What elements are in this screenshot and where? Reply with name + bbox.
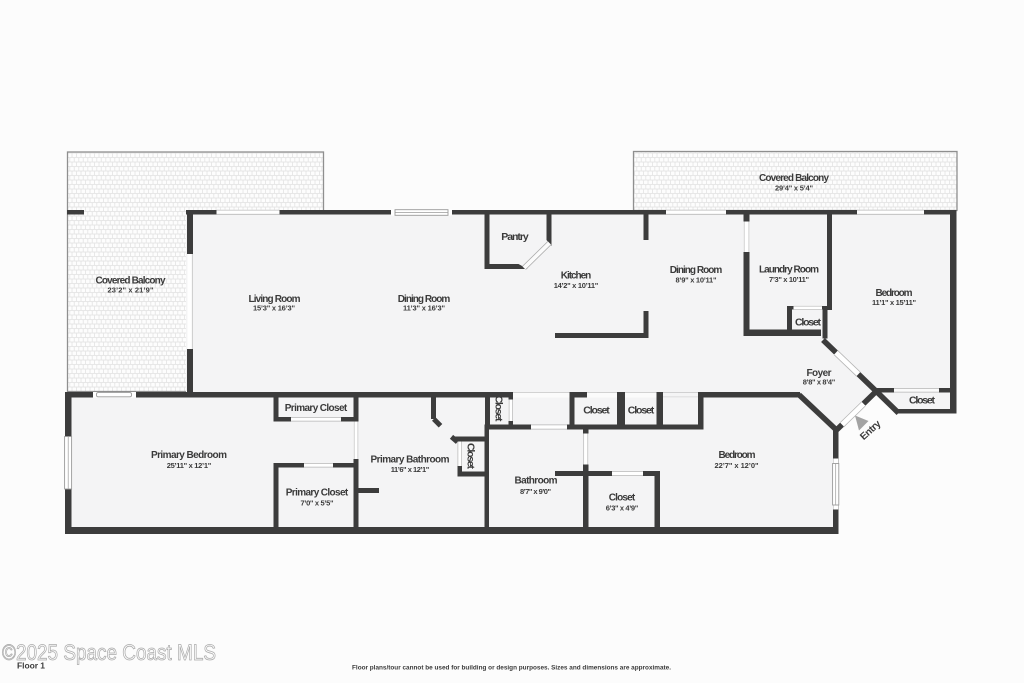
- svg-text:8’8" x 8’4": 8’8" x 8’4": [803, 378, 836, 387]
- svg-text:Laundry Room: Laundry Room: [759, 265, 819, 276]
- svg-text:Closet: Closet: [609, 493, 636, 504]
- svg-text:8’9" x 10’11": 8’9" x 10’11": [676, 276, 717, 285]
- svg-text:Primary Bathroom: Primary Bathroom: [371, 455, 450, 466]
- svg-text:Bedroom: Bedroom: [719, 450, 756, 461]
- svg-text:Closet: Closet: [493, 396, 505, 423]
- svg-text:29’4" x 5’4": 29’4" x 5’4": [775, 184, 813, 193]
- svg-text:Closet: Closet: [909, 395, 936, 407]
- svg-text:22’7" x 12’0": 22’7" x 12’0": [715, 461, 759, 470]
- svg-text:Dining Room: Dining Room: [670, 265, 723, 276]
- svg-text:Bathroom: Bathroom: [515, 476, 558, 487]
- svg-text:Closet: Closet: [583, 405, 610, 417]
- svg-text:Pantry: Pantry: [501, 231, 529, 243]
- svg-text:Primary Closet: Primary Closet: [285, 403, 348, 414]
- svg-text:Floor 1: Floor 1: [17, 661, 45, 671]
- svg-text:Primary Closet: Primary Closet: [286, 488, 349, 499]
- svg-text:Primary Bedroom: Primary Bedroom: [151, 450, 227, 461]
- svg-text:Covered Balcony: Covered Balcony: [759, 173, 829, 184]
- svg-text:14’2" x 10’11": 14’2" x 10’11": [554, 281, 599, 290]
- svg-text:8’7" x 9’0": 8’7" x 9’0": [520, 487, 551, 496]
- svg-text:Floor plans/tour cannot be use: Floor plans/tour cannot be used for buil…: [352, 665, 671, 672]
- svg-text:23’2" x 21’9": 23’2" x 21’9": [108, 286, 154, 295]
- svg-text:Kitchen: Kitchen: [561, 271, 592, 282]
- svg-text:7’3" x 10’11": 7’3" x 10’11": [769, 275, 809, 284]
- svg-text:15’3" x 16’3": 15’3" x 16’3": [253, 304, 295, 313]
- svg-text:11’6" x 12’1": 11’6" x 12’1": [391, 465, 430, 474]
- svg-text:11’1" x 15’11": 11’1" x 15’11": [872, 298, 916, 307]
- svg-text:Closet: Closet: [628, 405, 655, 417]
- svg-text:Closet: Closet: [465, 443, 477, 470]
- svg-text:Closet: Closet: [795, 317, 822, 329]
- svg-text:11’3" x 16’3": 11’3" x 16’3": [403, 304, 445, 313]
- svg-text:25’11" x 12’1": 25’11" x 12’1": [167, 461, 212, 470]
- svg-text:7’0" x 5’5": 7’0" x 5’5": [301, 499, 334, 508]
- svg-text:6’3" x 4’9": 6’3" x 4’9": [606, 504, 639, 513]
